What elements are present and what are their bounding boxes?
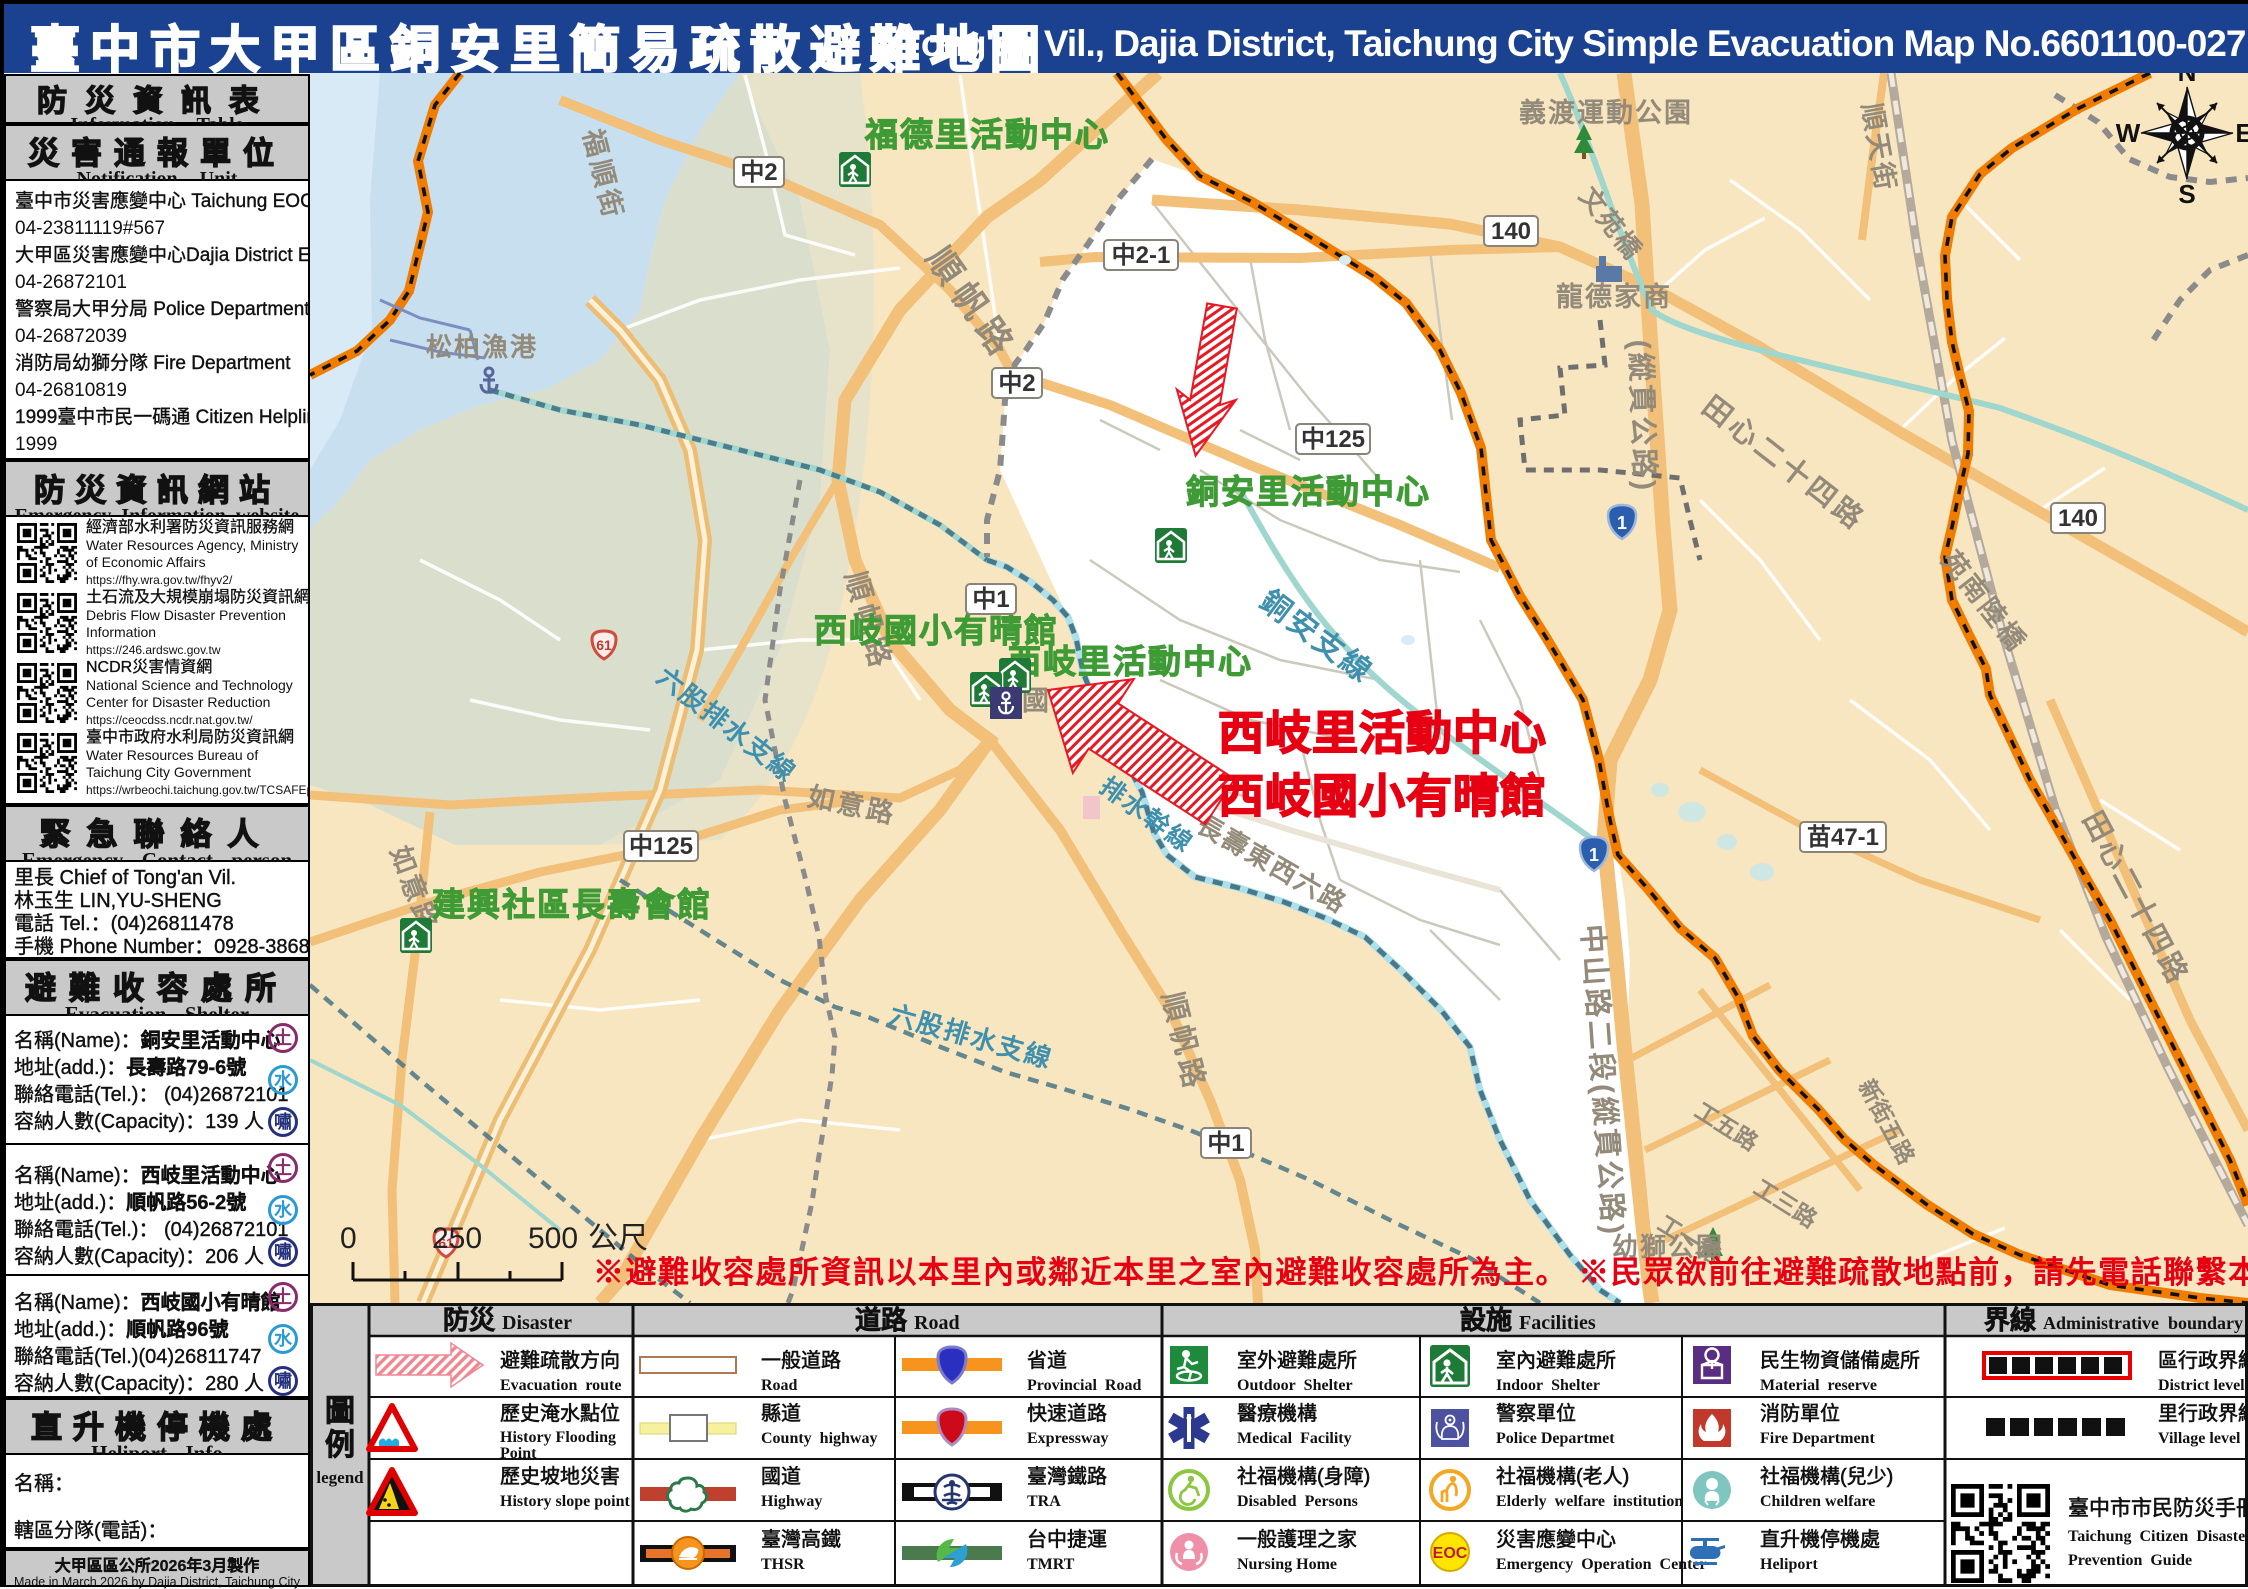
- svg-text:History Flooding: History Flooding: [500, 1429, 616, 1446]
- svg-text:界線: 界線: [1984, 1305, 2036, 1335]
- svg-text:里行政界線: 里行政界線: [2158, 1402, 2248, 1425]
- svg-text:legend: legend: [316, 1468, 364, 1487]
- svg-text:Indoor Shelter: Indoor Shelter: [1496, 1377, 1600, 1394]
- svg-text:銅安里活動中心: 銅安里活動中心: [1186, 473, 1431, 510]
- svg-text:TRA: TRA: [1027, 1493, 1061, 1510]
- svg-text:140: 140: [2058, 505, 2098, 532]
- svg-text:松柏漁港: 松柏漁港: [426, 332, 538, 362]
- svg-text:Elderly welfare institution: Elderly welfare institution: [1496, 1493, 1683, 1510]
- svg-text:福德里活動中心: 福德里活動中心: [864, 116, 1110, 153]
- svg-text:Facilities: Facilities: [1519, 1312, 1596, 1334]
- svg-text:西岐里活動中心: 西岐里活動中心: [1008, 643, 1253, 680]
- svg-text:中1: 中1: [972, 586, 1009, 613]
- svg-text:THSR: THSR: [761, 1556, 805, 1573]
- svg-text:室內避難處所: 室內避難處所: [1496, 1349, 1616, 1372]
- svg-text:County highway: County highway: [761, 1430, 877, 1447]
- svg-text:區行政界線: 區行政界線: [2158, 1349, 2248, 1372]
- svg-text:(縱貫公路): (縱貫公路): [1623, 339, 1662, 493]
- svg-text:省道: 省道: [1027, 1349, 1067, 1372]
- svg-text:Disabled Persons: Disabled Persons: [1237, 1493, 1358, 1510]
- svg-text:西岐國小有晴館: 西岐國小有晴館: [1218, 770, 1547, 822]
- svg-text:臺中市市民防災手冊: 臺中市市民防災手冊: [2068, 1497, 2248, 1520]
- svg-text:警察單位: 警察單位: [1496, 1402, 1576, 1425]
- svg-text:0: 0: [340, 1222, 357, 1255]
- svg-text:防災: 防災: [443, 1305, 496, 1335]
- svg-text:中2: 中2: [740, 159, 777, 186]
- svg-text:Point: Point: [500, 1445, 537, 1462]
- svg-text:社福機構(身障): 社福機構(身障): [1237, 1465, 1370, 1488]
- svg-text:一般道路: 一般道路: [761, 1349, 841, 1372]
- svg-text:Taichung Citizen Disaster: Taichung Citizen Disaster: [2068, 1528, 2248, 1545]
- svg-text:Provincial Road: Provincial Road: [1027, 1377, 1141, 1394]
- svg-text:社福機構(老人): 社福機構(老人): [1496, 1465, 1629, 1488]
- svg-text:國道: 國道: [761, 1465, 801, 1488]
- svg-text:Emergency Operation Center: Emergency Operation Center: [1496, 1556, 1707, 1573]
- svg-text:歷史坡地災害: 歷史坡地災害: [500, 1465, 620, 1488]
- svg-text:History slope point: History slope point: [500, 1493, 630, 1510]
- svg-text:Village level: Village level: [2158, 1430, 2241, 1447]
- svg-text:縣道: 縣道: [761, 1402, 801, 1425]
- svg-text:Fire Department: Fire Department: [1760, 1430, 1875, 1447]
- svg-text:中1: 中1: [1207, 1130, 1244, 1157]
- svg-text:TMRT: TMRT: [1027, 1556, 1075, 1573]
- svg-text:中125: 中125: [1301, 426, 1365, 453]
- svg-text:歷史淹水點位: 歷史淹水點位: [500, 1402, 620, 1425]
- svg-text:設施: 設施: [1460, 1305, 1512, 1335]
- svg-text:社福機構(兒少): 社福機構(兒少): [1760, 1465, 1893, 1488]
- svg-text:義渡運動公園: 義渡運動公園: [1519, 97, 1693, 128]
- svg-text:中2: 中2: [998, 370, 1035, 397]
- svg-text:Road: Road: [761, 1377, 798, 1394]
- svg-text:Material reserve: Material reserve: [1760, 1377, 1877, 1394]
- svg-text:公尺: 公尺: [588, 1222, 648, 1255]
- svg-text:500: 500: [528, 1222, 578, 1255]
- svg-text:臺灣鐵路: 臺灣鐵路: [1027, 1464, 1107, 1488]
- svg-text:一般護理之家: 一般護理之家: [1237, 1528, 1357, 1551]
- svg-text:快速道路: 快速道路: [1027, 1402, 1107, 1425]
- svg-text:消防單位: 消防單位: [1760, 1402, 1840, 1425]
- svg-text:EOC: EOC: [1433, 1545, 1468, 1562]
- svg-text:Road: Road: [914, 1312, 960, 1334]
- svg-text:Evacuation route: Evacuation route: [500, 1377, 621, 1394]
- svg-text:Prevention Guide: Prevention Guide: [2068, 1552, 2192, 1569]
- svg-text:圖: 圖: [325, 1395, 355, 1428]
- svg-text:臺灣高鐵: 臺灣高鐵: [761, 1527, 841, 1551]
- svg-text:Highway: Highway: [761, 1493, 822, 1510]
- svg-text:直升機停機處: 直升機停機處: [1760, 1528, 1880, 1551]
- svg-text:E: E: [2235, 118, 2248, 148]
- svg-text:140: 140: [1491, 218, 1531, 245]
- svg-text:台中捷運: 台中捷運: [1027, 1528, 1107, 1551]
- svg-text:Expressway: Expressway: [1027, 1430, 1109, 1447]
- svg-text:Children welfare: Children welfare: [1760, 1493, 1875, 1510]
- svg-text:N: N: [2178, 73, 2197, 87]
- svg-text:災害應變中心: 災害應變中心: [1496, 1527, 1616, 1551]
- svg-text:W: W: [2116, 118, 2141, 148]
- svg-text:避難疏散方向: 避難疏散方向: [500, 1349, 620, 1372]
- svg-text:中125: 中125: [629, 833, 693, 860]
- svg-text:建興社區長壽會館: 建興社區長壽會館: [432, 886, 712, 923]
- svg-text:醫療機構: 醫療機構: [1237, 1402, 1317, 1425]
- svg-text:Administrative boundary: Administrative boundary: [2043, 1313, 2243, 1333]
- svg-text:※避難收容處所資訊以本里內或鄰近本里之室內避難收容處所為主。: ※避難收容處所資訊以本里內或鄰近本里之室內避難收容處所為主。 ※民眾欲前往避難疏…: [593, 1255, 2248, 1290]
- svg-text:苗47-1: 苗47-1: [1807, 824, 1879, 851]
- svg-text:龍德家商: 龍德家商: [1556, 281, 1672, 312]
- svg-text:民生物資儲備處所: 民生物資儲備處所: [1760, 1349, 1920, 1372]
- svg-text:西岐里活動中心: 西岐里活動中心: [1218, 707, 1547, 759]
- svg-text:S: S: [2178, 179, 2195, 209]
- svg-text:Heliport: Heliport: [1760, 1556, 1818, 1573]
- svg-text:250: 250: [432, 1222, 482, 1255]
- svg-text:道路: 道路: [855, 1305, 908, 1335]
- svg-text:Nursing Home: Nursing Home: [1237, 1556, 1337, 1573]
- svg-text:Outdoor Shelter: Outdoor Shelter: [1237, 1377, 1353, 1394]
- svg-text:Police Departmet: Police Departmet: [1496, 1430, 1615, 1447]
- svg-text:中2-1: 中2-1: [1112, 242, 1171, 269]
- svg-text:室外避難處所: 室外避難處所: [1237, 1349, 1357, 1372]
- svg-text:Disaster: Disaster: [502, 1312, 572, 1334]
- svg-text:Medical Facility: Medical Facility: [1237, 1430, 1352, 1447]
- svg-text:例: 例: [325, 1429, 355, 1462]
- svg-text:District level: District level: [2158, 1377, 2245, 1394]
